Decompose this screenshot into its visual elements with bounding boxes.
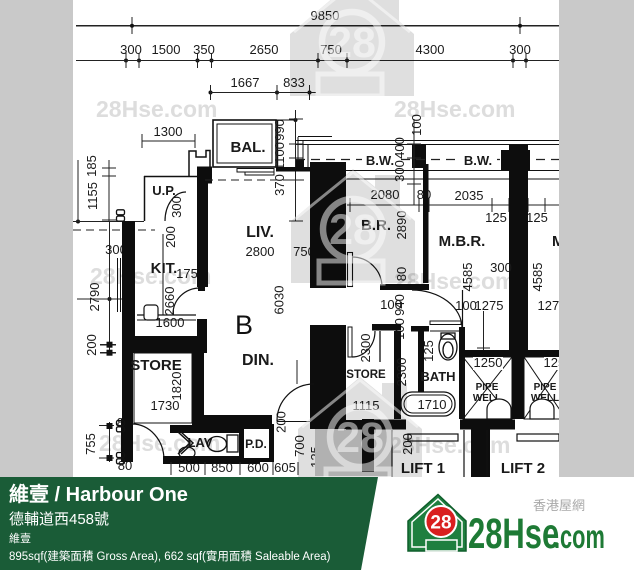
svg-text:755: 755 <box>83 433 98 455</box>
svg-text:BATH: BATH <box>420 369 455 384</box>
svg-text:B.W.: B.W. <box>366 153 394 168</box>
svg-text:400: 400 <box>392 137 407 159</box>
svg-text:125: 125 <box>526 210 548 225</box>
svg-text:2790: 2790 <box>87 283 102 312</box>
svg-text:1250: 1250 <box>474 355 503 370</box>
svg-text:2035: 2035 <box>455 188 484 203</box>
svg-text:維壹 / Harbour One: 維壹 / Harbour One <box>9 482 188 506</box>
svg-text:125: 125 <box>421 340 436 362</box>
svg-text:990: 990 <box>272 119 287 141</box>
svg-text:M.B.R.: M.B.R. <box>439 233 486 250</box>
svg-text:850: 850 <box>211 460 233 475</box>
svg-text:28: 28 <box>430 513 451 534</box>
svg-text:德輔道西458號: 德輔道西458號 <box>9 510 109 528</box>
svg-text:300: 300 <box>509 42 531 57</box>
svg-text:1820: 1820 <box>169 372 184 401</box>
svg-text:4585: 4585 <box>460 263 475 292</box>
svg-text:300: 300 <box>169 196 184 218</box>
svg-text:1500: 1500 <box>152 42 181 57</box>
svg-text:香港屋網: 香港屋網 <box>533 498 585 513</box>
svg-text:KIT.: KIT. <box>151 260 178 277</box>
svg-text:PIPE: PIPE <box>476 382 499 393</box>
svg-text:B: B <box>235 310 253 340</box>
svg-text:DIN.: DIN. <box>242 352 274 369</box>
svg-text:125: 125 <box>485 210 507 225</box>
svg-text:6030: 6030 <box>272 286 287 315</box>
svg-text:605: 605 <box>274 460 296 475</box>
svg-text:STORE: STORE <box>346 369 386 381</box>
svg-text:2300: 2300 <box>358 334 373 363</box>
svg-text:940: 940 <box>392 294 407 316</box>
svg-text:1710: 1710 <box>418 397 447 412</box>
svg-text:500: 500 <box>178 460 200 475</box>
svg-text:200: 200 <box>274 411 289 433</box>
svg-text:1275: 1275 <box>475 298 504 313</box>
svg-text:1667: 1667 <box>231 75 260 90</box>
svg-text:BAL.: BAL. <box>231 139 266 156</box>
svg-text:28Hse.com: 28Hse.com <box>96 96 217 122</box>
svg-text:2300: 2300 <box>394 358 409 387</box>
svg-text:28Hse: 28Hse <box>468 509 559 557</box>
svg-text:1100: 1100 <box>272 142 287 170</box>
svg-text:100: 100 <box>409 114 424 136</box>
svg-text:1155: 1155 <box>85 182 100 210</box>
svg-text:4300: 4300 <box>416 42 445 57</box>
svg-text:B.W.: B.W. <box>464 153 492 168</box>
svg-text:U.P.: U.P. <box>152 183 176 198</box>
svg-text:1600: 1600 <box>156 315 185 330</box>
svg-text:P.D.: P.D. <box>245 437 267 451</box>
svg-text:2650: 2650 <box>250 42 279 57</box>
svg-text:300: 300 <box>120 42 142 57</box>
svg-text:PIPE: PIPE <box>534 382 557 393</box>
svg-text:2660: 2660 <box>162 287 177 316</box>
svg-text:300: 300 <box>490 260 512 275</box>
svg-text:370: 370 <box>272 174 287 196</box>
svg-text:895sqf(建築面積 Gross Area), 662 s: 895sqf(建築面積 Gross Area), 662 sqf(實用面積 Sa… <box>9 549 331 563</box>
svg-text:600: 600 <box>247 460 269 475</box>
svg-text:維壹: 維壹 <box>9 532 31 545</box>
svg-text:LIFT 2: LIFT 2 <box>501 460 545 477</box>
svg-text:1300: 1300 <box>154 124 183 139</box>
svg-text:4585: 4585 <box>530 263 545 292</box>
svg-text:LIV.: LIV. <box>246 224 274 241</box>
svg-text:STORE: STORE <box>130 357 181 374</box>
svg-text:350: 350 <box>193 42 215 57</box>
svg-text:185: 185 <box>84 155 99 177</box>
svg-text:200: 200 <box>163 226 178 248</box>
svg-text:175: 175 <box>176 266 198 281</box>
svg-text:200: 200 <box>84 334 99 356</box>
svg-text:.com: .com <box>554 518 605 555</box>
svg-text:2800: 2800 <box>246 244 275 259</box>
